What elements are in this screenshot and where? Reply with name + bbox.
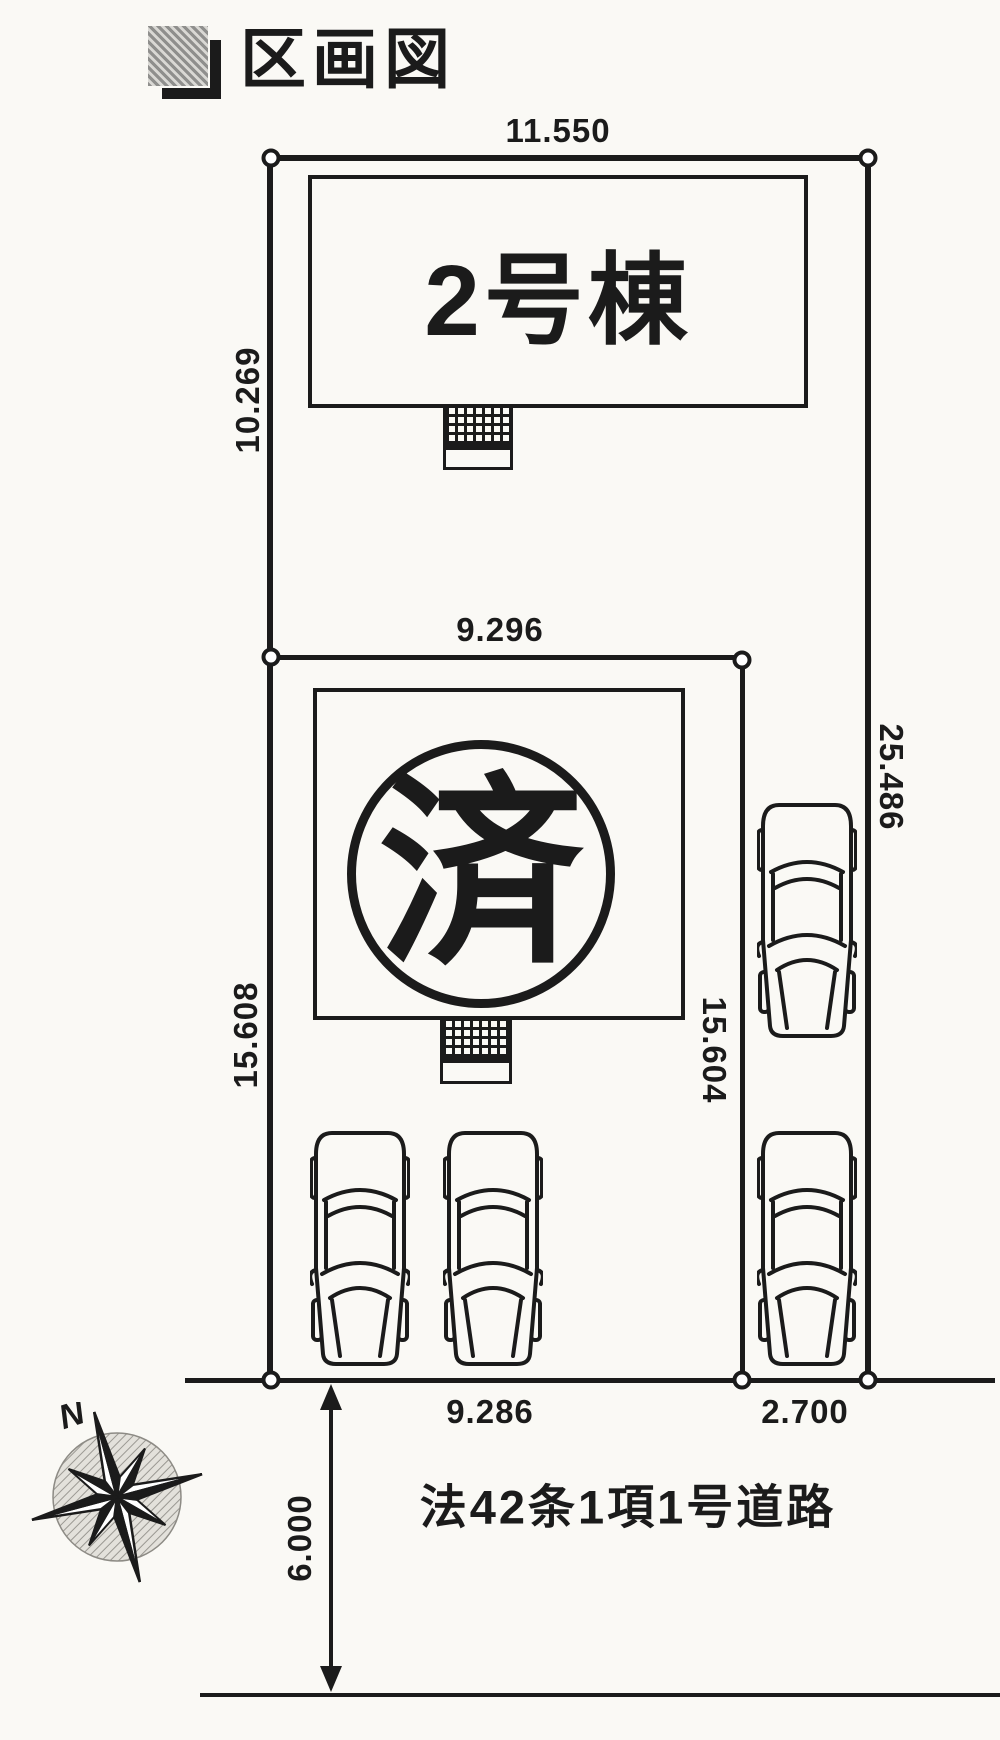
dim-frontage-side: 2.700: [761, 1393, 849, 1431]
corner-marker-mid-left: [262, 648, 281, 667]
road-width-arrow-top-icon: [320, 1384, 342, 1410]
sold-stamp: 済: [347, 740, 615, 1008]
building-lower-porch-icon: [440, 1018, 512, 1060]
building-2-porch-step: [443, 447, 513, 470]
compass-rose-icon: N: [22, 1402, 212, 1592]
section-marker-shadow: [162, 88, 221, 99]
building-2-label: 2号棟: [424, 219, 692, 364]
road-edge-far: [200, 1693, 1000, 1697]
dim-upper-left-depth: 10.269: [229, 347, 267, 454]
dim-right-depth: 25.486: [872, 724, 910, 831]
section-marker-chip: [148, 26, 208, 86]
sold-stamp-label: 済: [379, 772, 584, 977]
corner-marker-bottom-right: [859, 1371, 878, 1390]
boundary-top: [270, 155, 871, 161]
page-title-block: 区画図: [148, 26, 456, 104]
dim-frontage-main: 9.286: [446, 1393, 534, 1431]
page-title: 区画図: [240, 26, 456, 92]
boundary-right: [865, 155, 871, 1383]
car-icon: [757, 800, 857, 1040]
section-marker-icon: [148, 26, 226, 104]
compass-north-label: N: [54, 1402, 90, 1437]
lot-divider-horizontal: [270, 655, 745, 660]
dim-mid-width: 9.296: [456, 611, 544, 649]
road-name-label: 法42条1項1号道路: [420, 1469, 837, 1538]
car-icon: [757, 1128, 857, 1368]
car-icon: [310, 1128, 410, 1368]
road-width-arrow-line: [329, 1392, 333, 1684]
lot-divider-vertical: [740, 657, 745, 1383]
corner-marker-mid-right: [733, 651, 752, 670]
corner-marker-bottom-left: [262, 1371, 281, 1390]
car-icon: [443, 1128, 543, 1368]
corner-marker-top-left: [262, 149, 281, 168]
building-lower-porch-step: [440, 1060, 512, 1084]
dim-road-width: 6.000: [281, 1494, 319, 1582]
road-width-arrow-bottom-icon: [320, 1666, 342, 1692]
dim-lower-mid-depth: 15.604: [695, 997, 733, 1104]
lot-plan-page: 区画図 2号棟 済 11.550 10.269 9.296 25.486 15.…: [0, 0, 1000, 1740]
boundary-left: [267, 155, 273, 1383]
corner-marker-top-right: [859, 149, 878, 168]
dim-top-width: 11.550: [505, 112, 610, 150]
corner-marker-bottom-mid: [733, 1371, 752, 1390]
building-2-outline: 2号棟: [308, 175, 808, 408]
building-2-porch-icon: [443, 405, 513, 447]
dim-lower-left-depth: 15.608: [227, 982, 265, 1089]
